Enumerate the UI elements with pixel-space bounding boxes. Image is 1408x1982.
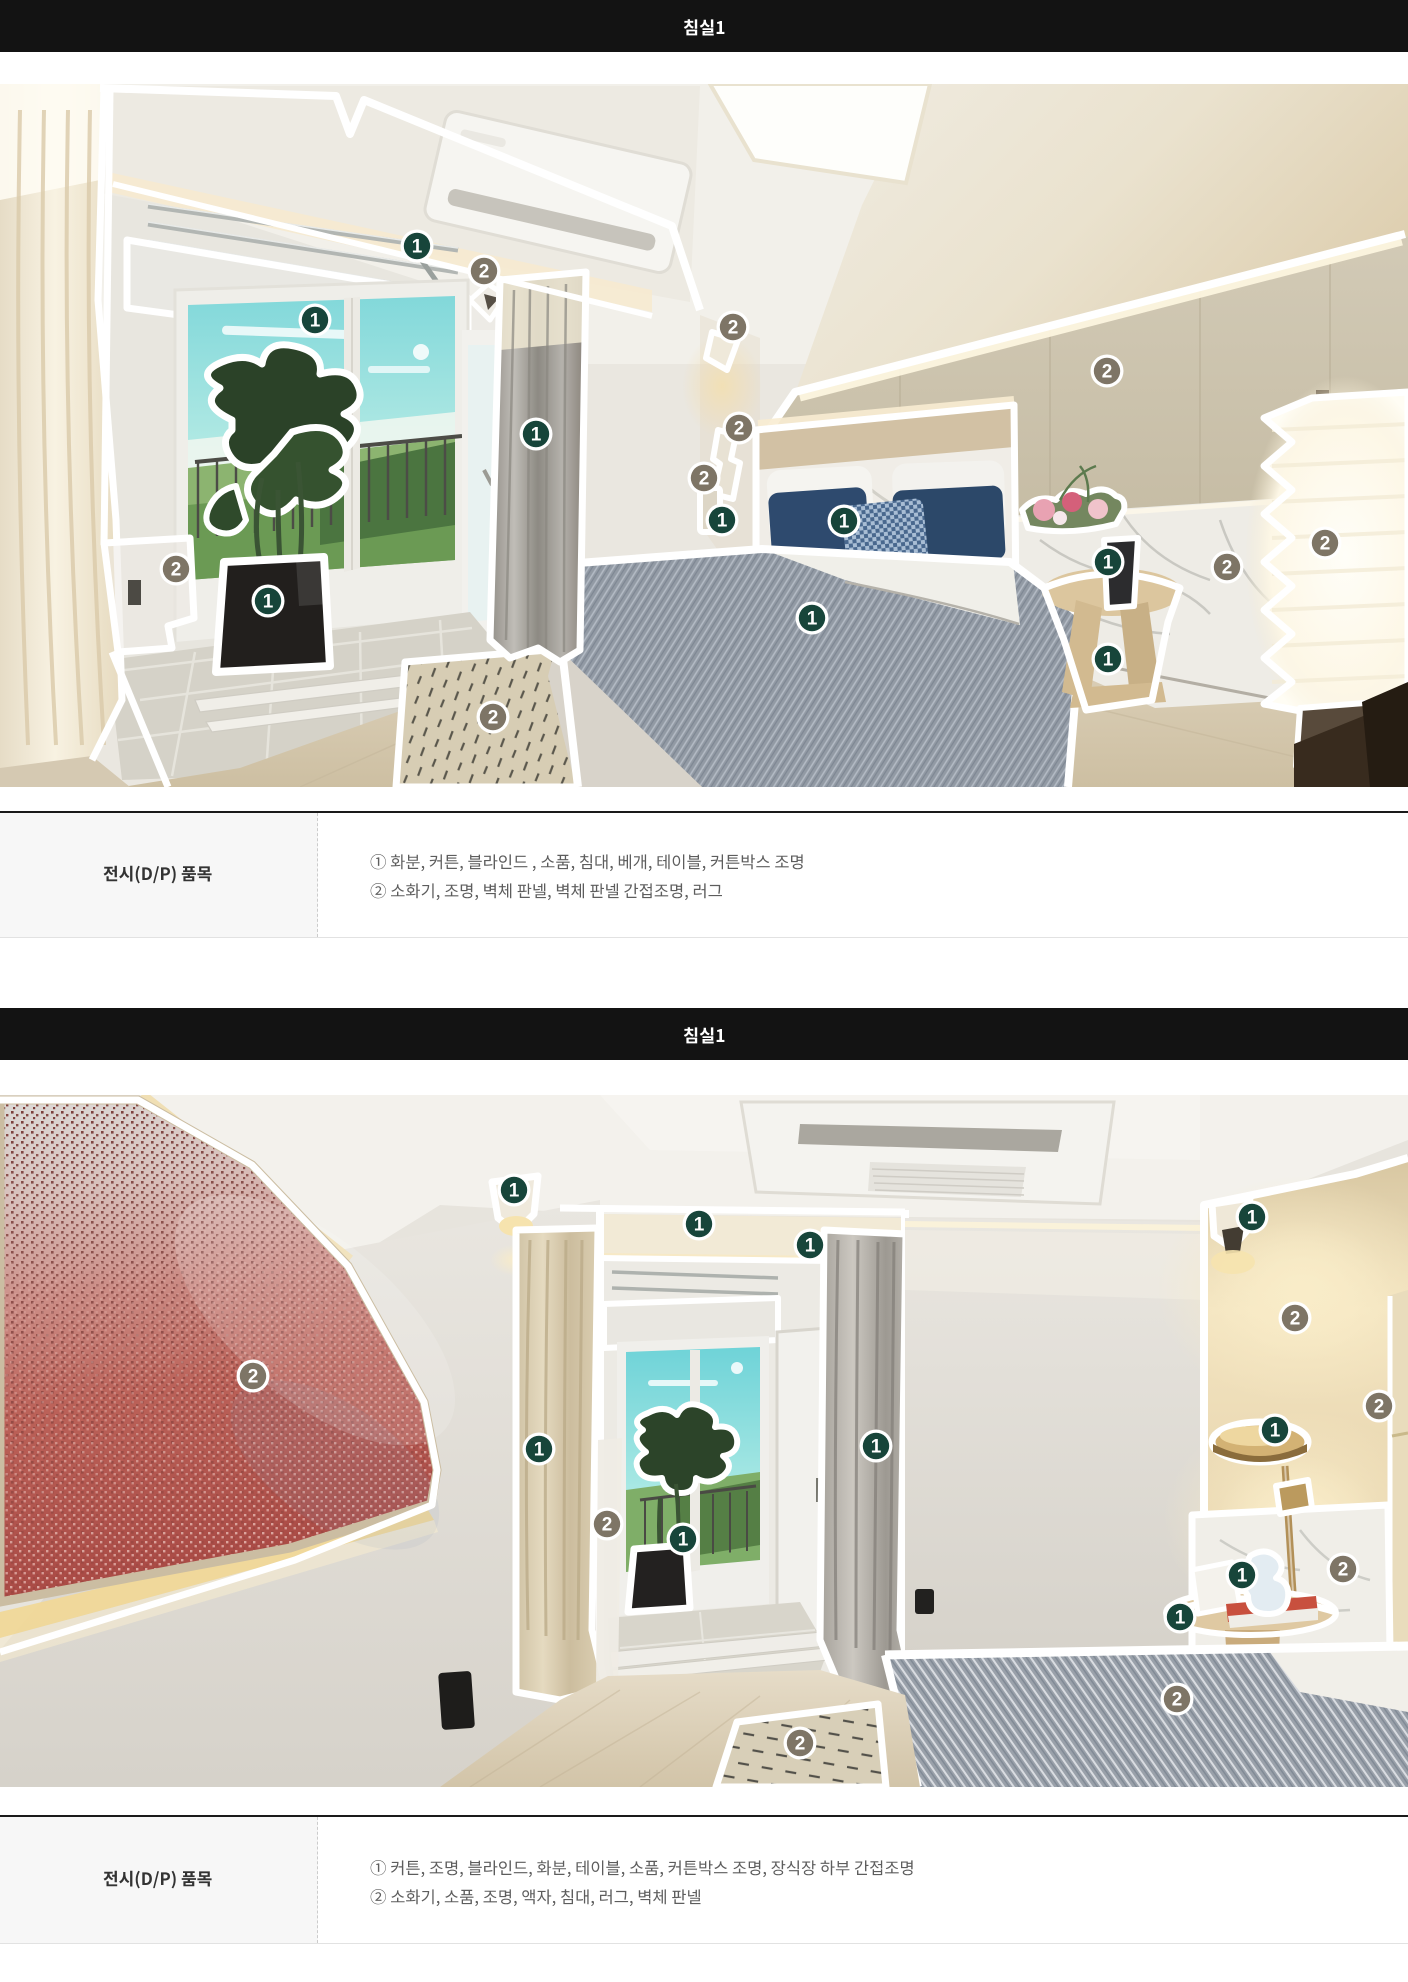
svg-text:1: 1	[1103, 650, 1114, 671]
svg-text:1: 1	[310, 311, 321, 332]
svg-text:2: 2	[1374, 1397, 1385, 1418]
svg-text:2: 2	[795, 1734, 806, 1755]
svg-text:1: 1	[678, 1530, 689, 1551]
svg-text:2: 2	[1172, 1690, 1183, 1711]
svg-text:1: 1	[1175, 1608, 1186, 1629]
svg-text:1: 1	[412, 237, 423, 258]
svg-text:1: 1	[1270, 1421, 1281, 1442]
svg-text:2: 2	[1222, 558, 1233, 579]
svg-text:2: 2	[248, 1367, 259, 1388]
svg-text:2: 2	[479, 262, 490, 283]
svg-text:2: 2	[728, 318, 739, 339]
svg-text:2: 2	[1102, 362, 1113, 383]
svg-text:2: 2	[1338, 1560, 1349, 1581]
svg-text:2: 2	[171, 560, 182, 581]
svg-text:1: 1	[694, 1215, 705, 1236]
svg-text:1: 1	[805, 1236, 816, 1257]
svg-text:1: 1	[263, 592, 274, 613]
svg-text:1: 1	[807, 609, 818, 630]
svg-text:1: 1	[1103, 553, 1114, 574]
svg-text:2: 2	[602, 1515, 613, 1536]
svg-text:1: 1	[531, 425, 542, 446]
svg-text:2: 2	[488, 708, 499, 729]
svg-text:2: 2	[734, 419, 745, 440]
svg-text:2: 2	[1320, 534, 1331, 555]
svg-text:1: 1	[509, 1181, 520, 1202]
svg-text:2: 2	[699, 469, 710, 490]
svg-text:1: 1	[1237, 1566, 1248, 1587]
svg-text:1: 1	[534, 1440, 545, 1461]
svg-text:2: 2	[1290, 1309, 1301, 1330]
svg-text:1: 1	[871, 1437, 882, 1458]
svg-text:1: 1	[839, 512, 850, 533]
svg-text:1: 1	[1247, 1208, 1258, 1229]
svg-text:1: 1	[717, 511, 728, 532]
